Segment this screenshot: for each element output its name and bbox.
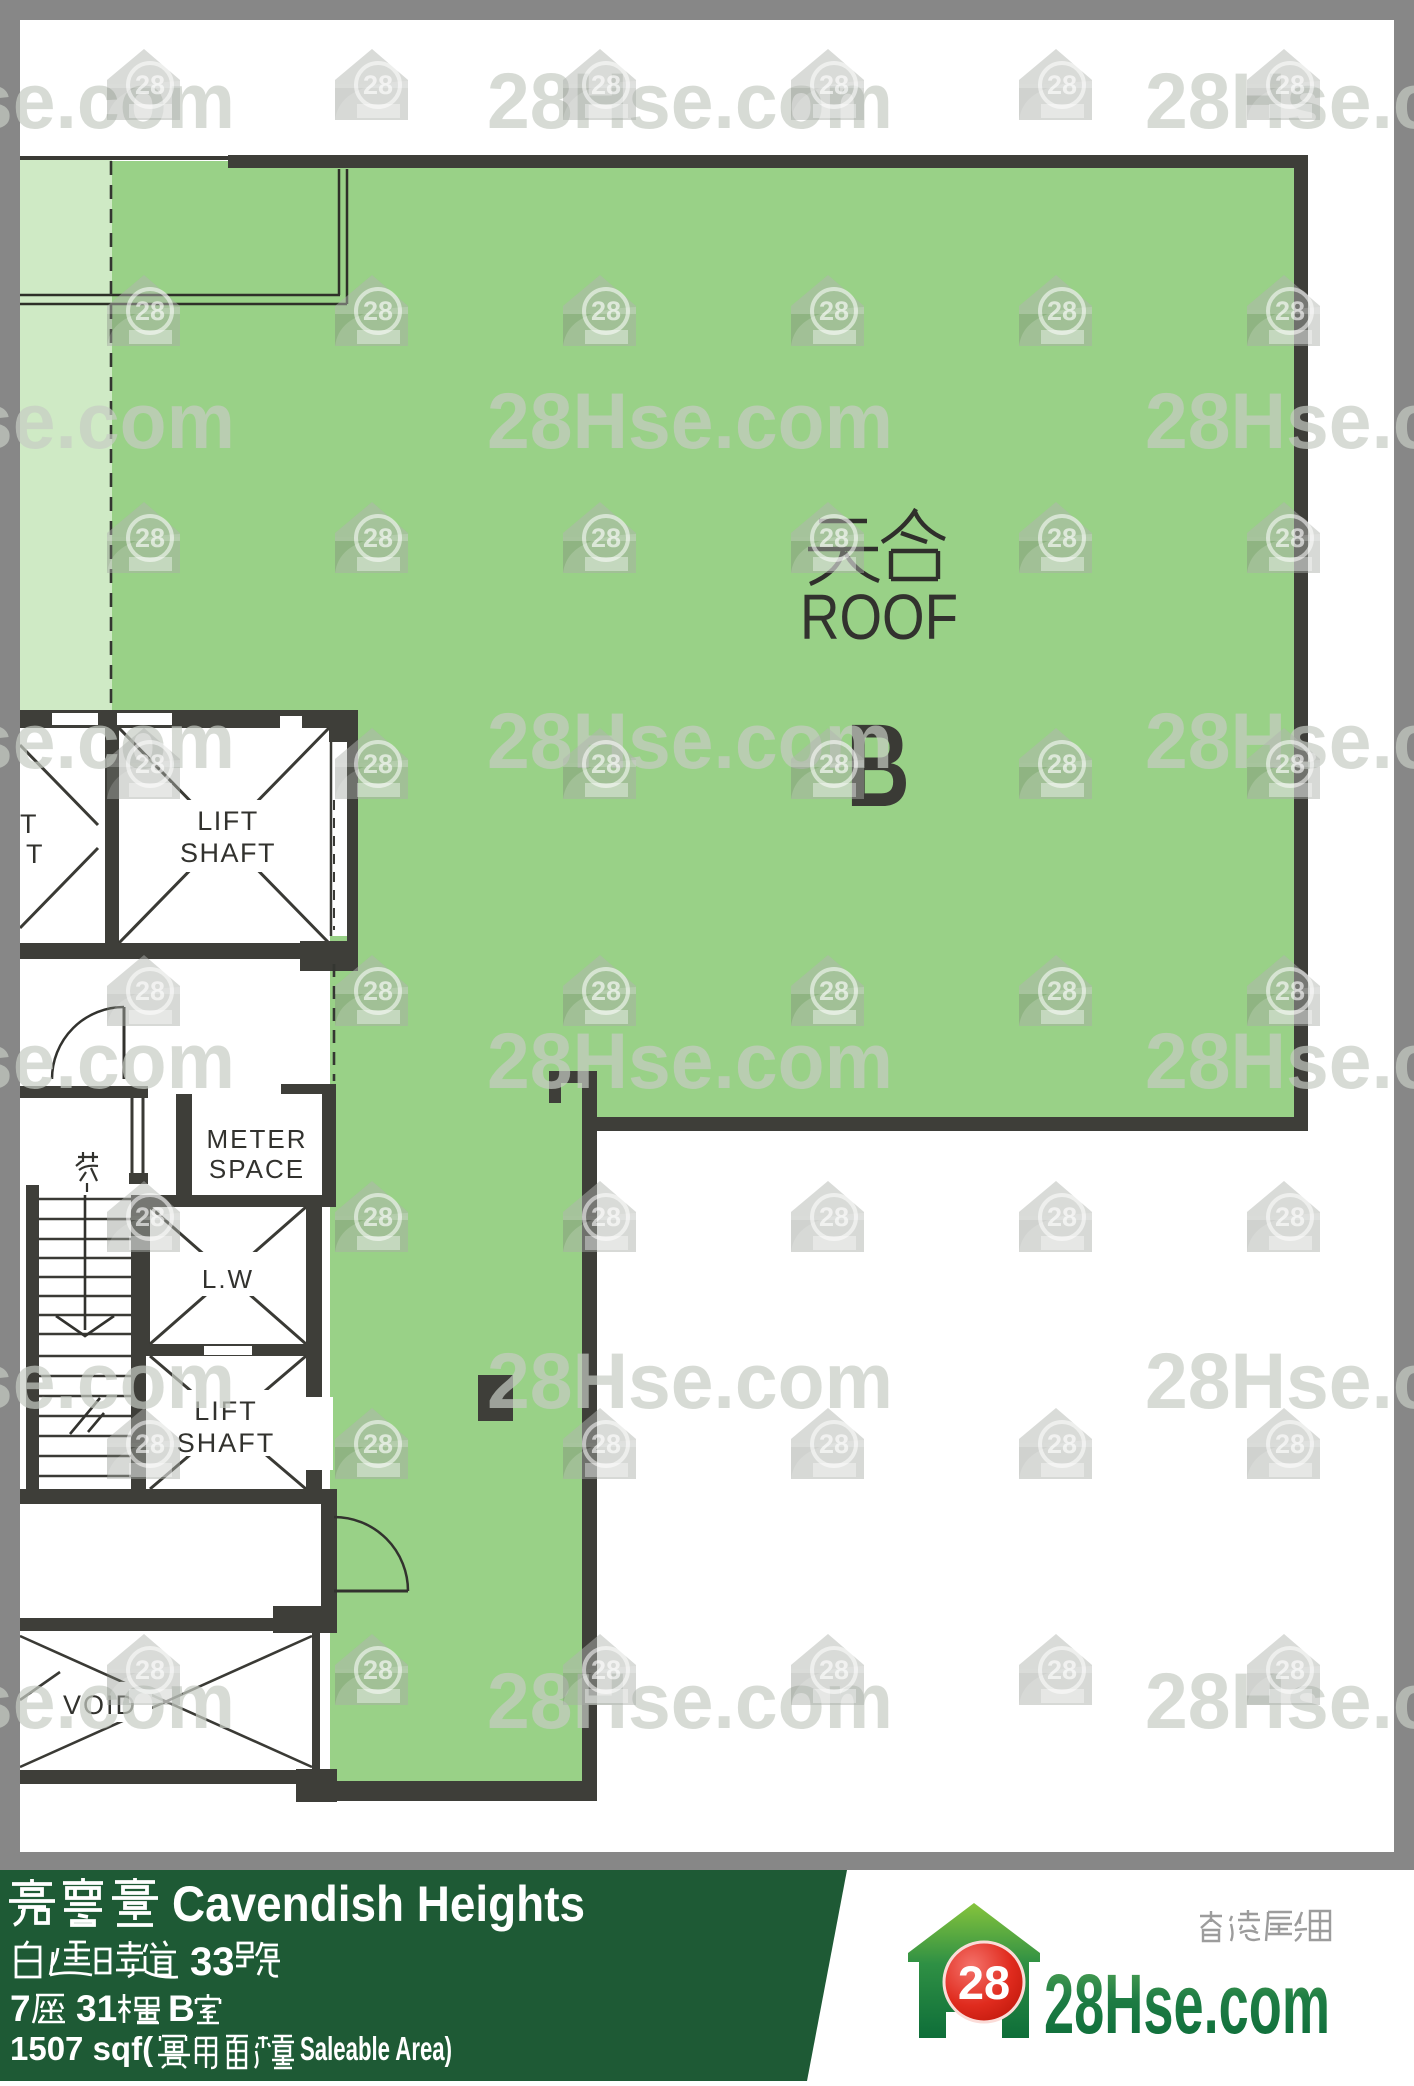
svg-text:SPACE: SPACE <box>209 1154 305 1184</box>
svg-text:33: 33 <box>190 1940 235 1984</box>
svg-text:28: 28 <box>958 1956 1010 2009</box>
svg-text:28Hse.com: 28Hse.com <box>1044 1957 1330 2051</box>
svg-text:Cavendish Heights: Cavendish Heights <box>172 1876 585 1932</box>
svg-text:1507 sqf(: 1507 sqf( <box>10 2030 153 2067</box>
svg-text:B: B <box>168 1988 195 2029</box>
svg-text:METER: METER <box>207 1124 308 1154</box>
svg-text:L.W: L.W <box>202 1264 254 1294</box>
svg-text:31: 31 <box>76 1988 117 2029</box>
svg-text:Saleable Area): Saleable Area) <box>300 2030 452 2067</box>
svg-text:T: T <box>20 809 37 839</box>
svg-text:7: 7 <box>10 1988 31 2029</box>
svg-text:LIFT: LIFT <box>197 806 259 836</box>
svg-text:SHAFT: SHAFT <box>177 1428 276 1458</box>
svg-text:ROOF: ROOF <box>800 581 958 653</box>
svg-text:T: T <box>26 839 43 869</box>
svg-text:SHAFT: SHAFT <box>180 838 276 868</box>
